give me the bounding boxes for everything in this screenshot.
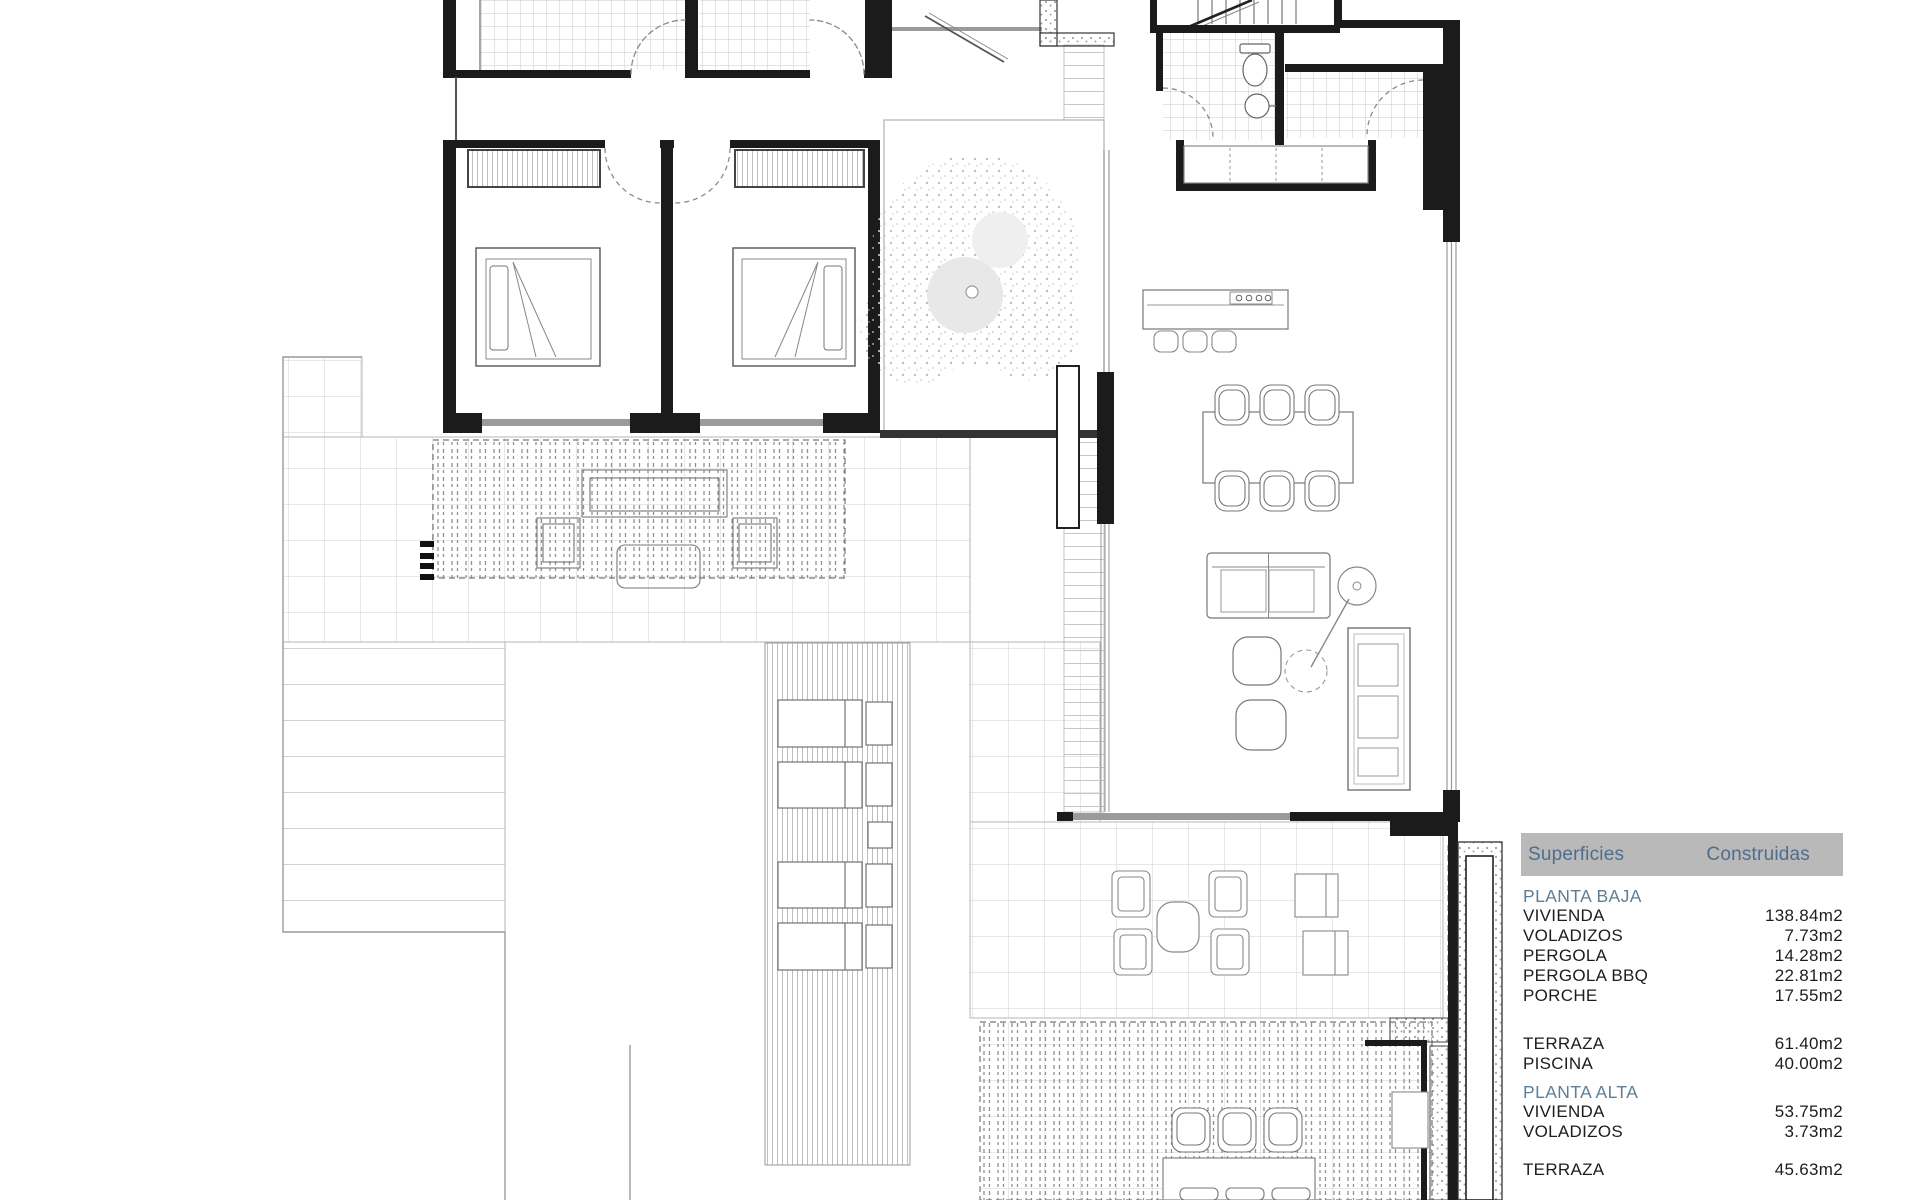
pergola-lounge	[420, 440, 845, 588]
pool-water	[1466, 856, 1493, 1200]
wall	[1097, 372, 1114, 524]
door-arc	[675, 148, 730, 203]
wall	[1290, 812, 1392, 821]
section-planta-baja: PLANTA BAJA VIVIENDA 138.84m2 VOLADIZOS …	[1521, 886, 1843, 1006]
living-room	[1207, 553, 1410, 790]
wall	[823, 413, 880, 433]
armchair-pouf-2	[1236, 700, 1286, 750]
dining-area	[1203, 385, 1353, 511]
wall	[443, 140, 456, 432]
table-row: VIVIENDA 138.84m2	[1521, 906, 1843, 926]
pool	[1448, 822, 1502, 1200]
table-row: VIVIENDA 53.75m2	[1521, 1102, 1843, 1122]
door-rail	[892, 27, 1042, 31]
door-arc	[810, 20, 864, 74]
sun-lounger-deck	[765, 643, 910, 1165]
bedroom-1	[443, 140, 660, 432]
wall	[1057, 812, 1073, 821]
section-planta-alta: PLANTA ALTA VIVIENDA 53.75m2 VOLADIZOS 3…	[1521, 1082, 1843, 1142]
section-exterior-baja: TERRAZA 61.40m2 PISCINA 40.00m2	[1521, 1034, 1843, 1074]
porch-tiles	[970, 822, 1443, 1018]
bar-stools	[1154, 331, 1236, 352]
wall	[1334, 20, 1447, 28]
terrace-tiles-step	[283, 357, 362, 437]
closet	[735, 150, 864, 187]
bedroom-south-wall	[443, 413, 880, 433]
hatched-wall	[1040, 33, 1114, 46]
table-row: PERGOLA 14.28m2	[1521, 946, 1843, 966]
header-col-construidas: Construidas	[1706, 844, 1810, 866]
areas-table-body: PLANTA BAJA VIVIENDA 138.84m2 VOLADIZOS …	[1521, 876, 1843, 1180]
window	[700, 419, 823, 426]
bbq-wall	[1390, 1018, 1448, 1042]
kitchen	[1143, 290, 1288, 352]
section-exterior-alta: TERRAZA 45.63m2	[1521, 1160, 1843, 1180]
bbq-wall-band	[1430, 1046, 1448, 1200]
table-row: VOLADIZOS 7.73m2	[1521, 926, 1843, 946]
wall	[1365, 1040, 1427, 1046]
header-col-superficies: Superficies	[1528, 844, 1624, 866]
table-row: TERRAZA 61.40m2	[1521, 1034, 1843, 1054]
wall	[1150, 25, 1340, 33]
wall	[685, 70, 810, 78]
wall	[661, 140, 673, 432]
sofa	[1207, 553, 1330, 618]
sink-icon	[1245, 94, 1269, 118]
bedroom-2	[660, 140, 880, 432]
wall-corner-step	[1390, 812, 1450, 836]
closet-body	[1184, 146, 1368, 183]
wall	[1448, 822, 1458, 1200]
pivot-door-leaf-edge	[929, 13, 1008, 59]
pergola-hatch	[433, 440, 845, 578]
wall	[1368, 140, 1376, 190]
bathroom-1-floor	[480, 0, 685, 70]
wall	[730, 140, 880, 148]
east-glazing	[1447, 242, 1456, 790]
door-arc	[605, 148, 660, 203]
stairs	[1150, 0, 1447, 33]
tree-canopy-blob-2	[972, 212, 1028, 268]
sliding-door-panel	[1057, 366, 1079, 528]
terrace-planks	[283, 642, 505, 932]
wall	[443, 413, 482, 433]
stair-treads	[1198, 0, 1296, 24]
wall	[1176, 183, 1376, 191]
table-row: PISCINA 40.00m2	[1521, 1054, 1843, 1074]
areas-table: Superficies Construidas PLANTA BAJA VIVI…	[1521, 833, 1843, 1180]
toilet-tank	[1240, 44, 1270, 53]
wall	[865, 0, 892, 78]
bathroom-2-floor	[700, 0, 810, 70]
bbq-counter	[1392, 1092, 1428, 1148]
section-title: PLANTA BAJA	[1521, 886, 1843, 906]
table-row: TERRAZA 45.63m2	[1521, 1160, 1843, 1180]
window	[1073, 813, 1290, 820]
wall	[1275, 33, 1284, 145]
wall	[1423, 64, 1445, 210]
tv-sideboard	[1348, 628, 1410, 790]
floorplan-sheet: Superficies Construidas PLANTA BAJA VIVI…	[0, 0, 1920, 1200]
wall	[443, 0, 456, 78]
wc	[1156, 33, 1284, 145]
toilet-icon	[1243, 54, 1267, 86]
areas-table-header: Superficies Construidas	[1521, 833, 1843, 876]
west-glazing-north	[1104, 150, 1109, 372]
wall	[1285, 64, 1425, 72]
wall	[630, 413, 700, 433]
closet	[468, 150, 600, 187]
window	[482, 419, 630, 426]
bed	[733, 248, 855, 366]
outdoor-table	[1157, 902, 1199, 952]
wall	[1176, 140, 1184, 190]
section-title: PLANTA ALTA	[1521, 1082, 1843, 1102]
tree-canopy-blob	[927, 257, 1003, 333]
wall	[443, 70, 631, 78]
wall	[1156, 33, 1163, 91]
armchair-pouf	[1233, 637, 1281, 685]
tree-trunk	[966, 286, 978, 298]
wall	[443, 140, 605, 148]
hall-closet	[1176, 140, 1376, 191]
table-row: VOLADIZOS 3.73m2	[1521, 1122, 1843, 1142]
wall	[685, 0, 698, 78]
table-row: PORCHE 17.55m2	[1521, 986, 1843, 1006]
hall-floor	[1285, 72, 1423, 138]
stair-break-line	[1186, 0, 1252, 28]
pergola-bbq	[980, 1018, 1448, 1200]
bed	[476, 248, 600, 366]
pivot-door-leaf	[925, 16, 1004, 62]
wall	[1443, 20, 1460, 242]
table-row: PERGOLA BBQ 22.81m2	[1521, 966, 1843, 986]
upper-bathrooms	[443, 0, 892, 140]
